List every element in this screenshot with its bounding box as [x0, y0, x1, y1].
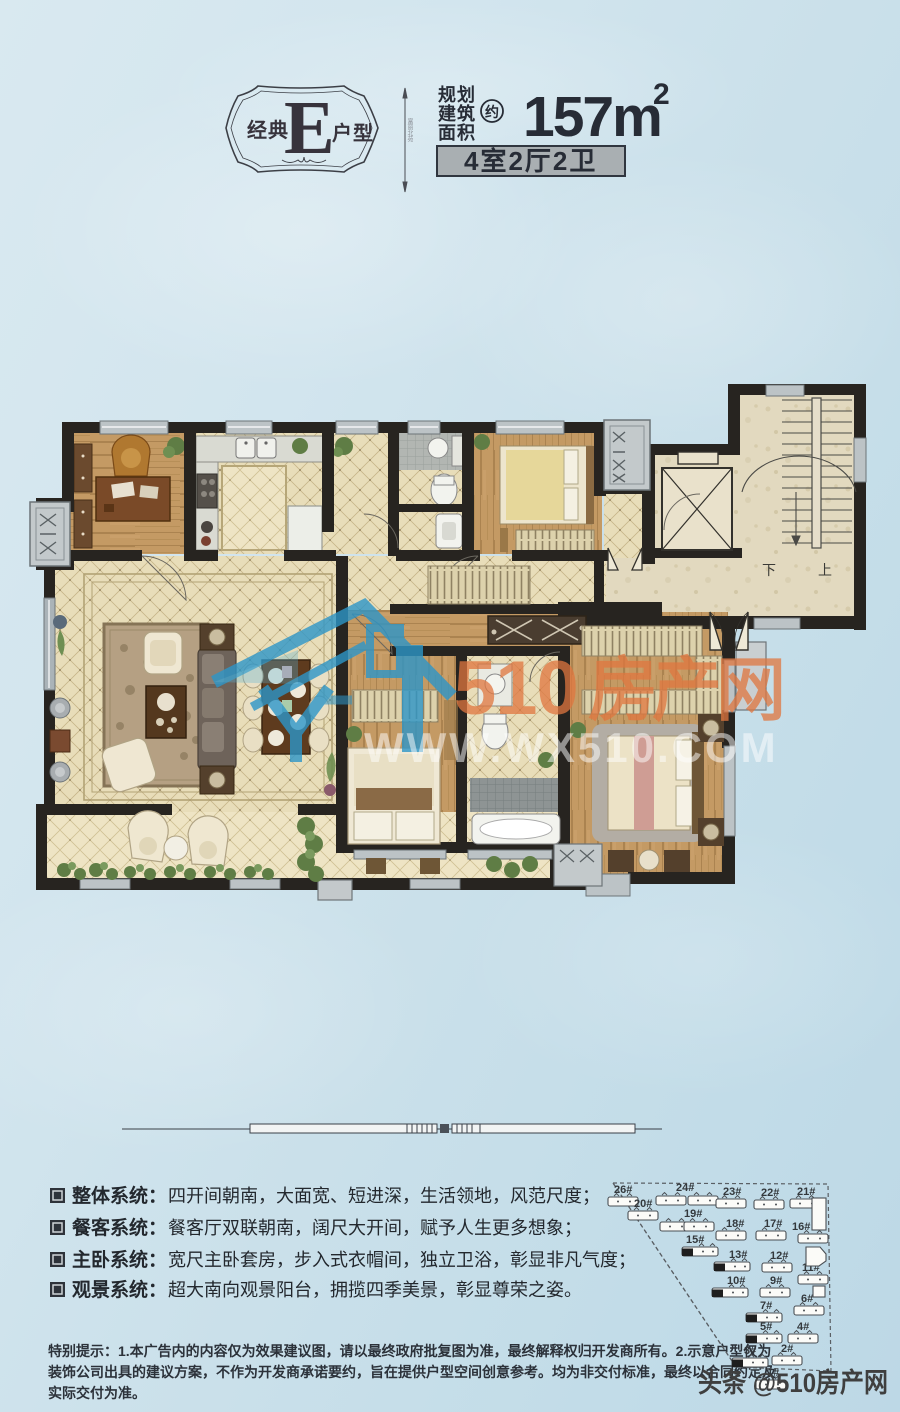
- svg-text:12#: 12#: [770, 1250, 788, 1262]
- svg-text:24#: 24#: [676, 1182, 694, 1194]
- svg-text:实际交付为准。: 实际交付为准。: [48, 1385, 146, 1401]
- svg-text:4室2厅2卫: 4室2厅2卫: [464, 146, 597, 176]
- svg-text:超大南向观景阳台，拥揽四季美景，彰显尊荣之姿。: 超大南向观景阳台，拥揽四季美景，彰显尊荣之姿。: [168, 1280, 582, 1300]
- svg-text:26#: 26#: [614, 1184, 632, 1196]
- svg-text:2: 2: [653, 78, 670, 111]
- svg-text:房产网: 房产网: [588, 651, 782, 729]
- svg-text:装饰公司出具的建议方案，不作为开发商承诺要约，旨在提供户型空: 装饰公司出具的建议方案，不作为开发商承诺要约，旨在提供户型空间创意参考。均为非交…: [47, 1364, 777, 1380]
- svg-text:157m: 157m: [523, 85, 661, 149]
- svg-text:头条 @510房产网: 头条 @510房产网: [698, 1368, 888, 1398]
- svg-text:餐客系统：: 餐客系统：: [72, 1216, 167, 1239]
- svg-text:7#: 7#: [760, 1300, 772, 1312]
- svg-text:四开间朝南，大面宽、短进深，生活领地，风范尺度；: 四开间朝南，大面宽、短进深，生活领地，风范尺度；: [168, 1186, 600, 1206]
- svg-text:15#: 15#: [686, 1234, 704, 1246]
- svg-text:4#: 4#: [797, 1321, 809, 1333]
- svg-text:20#: 20#: [634, 1198, 652, 1210]
- svg-text:建筑: 建筑: [438, 103, 476, 124]
- svg-text:富丽北苑: 富丽北苑: [406, 117, 413, 143]
- svg-text:2#: 2#: [781, 1343, 793, 1355]
- svg-text:特别提示：1.本广告内的内容仅为效果建议图，请以最终政府批复: 特别提示：1.本广告内的内容仅为效果建议图，请以最终政府批复图为准，最终解释权归…: [48, 1343, 771, 1359]
- svg-text:18#: 18#: [726, 1218, 744, 1230]
- svg-text:10#: 10#: [727, 1275, 745, 1287]
- svg-text:17#: 17#: [764, 1218, 782, 1230]
- svg-text:6#: 6#: [801, 1293, 813, 1305]
- svg-text:经典: 经典: [247, 118, 289, 142]
- svg-text:宽尺主卧套房，步入式衣帽间，独立卫浴，彰显非凡气度；: 宽尺主卧套房，步入式衣帽间，独立卫浴，彰显非凡气度；: [168, 1250, 636, 1270]
- svg-text:510: 510: [454, 646, 578, 731]
- svg-text:主卧系统：: 主卧系统：: [72, 1248, 167, 1271]
- svg-text:9#: 9#: [770, 1275, 782, 1287]
- svg-text:19#: 19#: [684, 1208, 702, 1220]
- svg-text:上: 上: [818, 562, 832, 578]
- svg-text:餐客厅双联朝南，阔尺大开间，赋予人生更多想象；: 餐客厅双联朝南，阔尺大开间，赋予人生更多想象；: [168, 1218, 582, 1238]
- svg-text:规划: 规划: [438, 84, 476, 105]
- svg-text:16#: 16#: [792, 1221, 810, 1233]
- svg-text:约: 约: [485, 104, 499, 120]
- svg-text:面积: 面积: [438, 123, 476, 143]
- svg-text:5#: 5#: [760, 1321, 772, 1333]
- svg-text:21#: 21#: [797, 1186, 815, 1198]
- svg-text:3#: 3#: [744, 1345, 756, 1357]
- svg-text:整体系统：: 整体系统：: [72, 1184, 167, 1207]
- svg-text:23#: 23#: [723, 1186, 741, 1198]
- svg-text:22#: 22#: [761, 1187, 779, 1199]
- svg-text:户型: 户型: [332, 121, 374, 145]
- svg-text:13#: 13#: [729, 1249, 747, 1261]
- svg-text:E: E: [284, 86, 335, 170]
- svg-text:观景系统：: 观景系统：: [72, 1278, 167, 1301]
- svg-text:下: 下: [762, 562, 776, 578]
- svg-text:WWW.WX510.COM: WWW.WX510.COM: [364, 724, 779, 771]
